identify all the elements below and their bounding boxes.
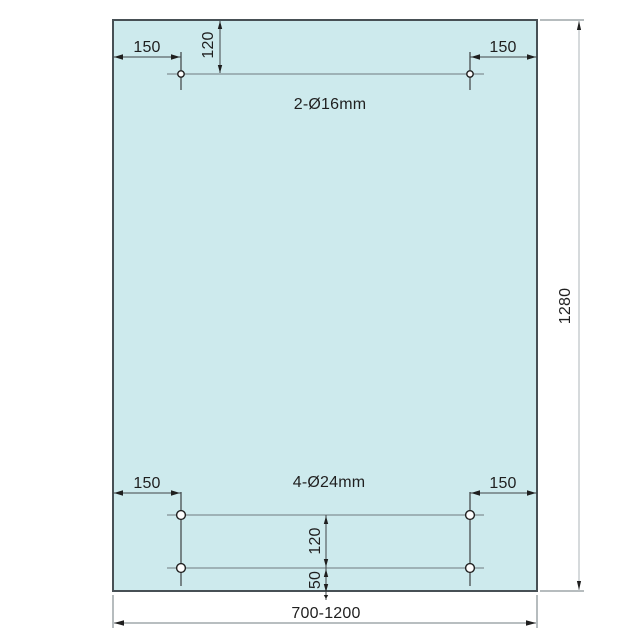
dim-bottom-right-offset-text: 150: [489, 475, 516, 492]
drawing-canvas: 150 150 120 2-Ø16mm 150 150 4-Ø24m: [0, 0, 640, 640]
bottom-holes-label: 4-Ø24mm: [293, 474, 366, 491]
dim-height-text: 1280: [557, 288, 574, 324]
dim-bottom-offset-text: 50: [307, 571, 324, 589]
dim-top-left-offset-text: 150: [133, 39, 160, 56]
dim-width-arrow-right: [526, 620, 536, 626]
hole-top-left: [178, 71, 184, 77]
hole-bottom-row1-left: [177, 511, 186, 520]
dim-top-vertical-offset-text: 120: [200, 31, 217, 58]
dim-height-arrow-bottom: [577, 581, 581, 590]
panel-drawing-svg: 150 150 120 2-Ø16mm 150 150 4-Ø24m: [0, 0, 640, 640]
hole-bottom-row2-left: [177, 564, 186, 573]
dim-top-right-offset-text: 150: [489, 39, 516, 56]
hole-bottom-row1-right: [466, 511, 475, 520]
dim-width-arrow-left: [114, 620, 124, 626]
hole-bottom-row2-right: [466, 564, 475, 573]
dim-row-spacing-text: 120: [307, 527, 324, 554]
dim-width-text: 700-1200: [291, 605, 360, 622]
top-holes-label: 2-Ø16mm: [294, 96, 367, 113]
hole-top-right: [467, 71, 473, 77]
dim-bottom-vertical-end-tick: [324, 595, 328, 599]
dim-bottom-left-offset-text: 150: [133, 475, 160, 492]
dim-height-arrow-top: [577, 21, 581, 30]
